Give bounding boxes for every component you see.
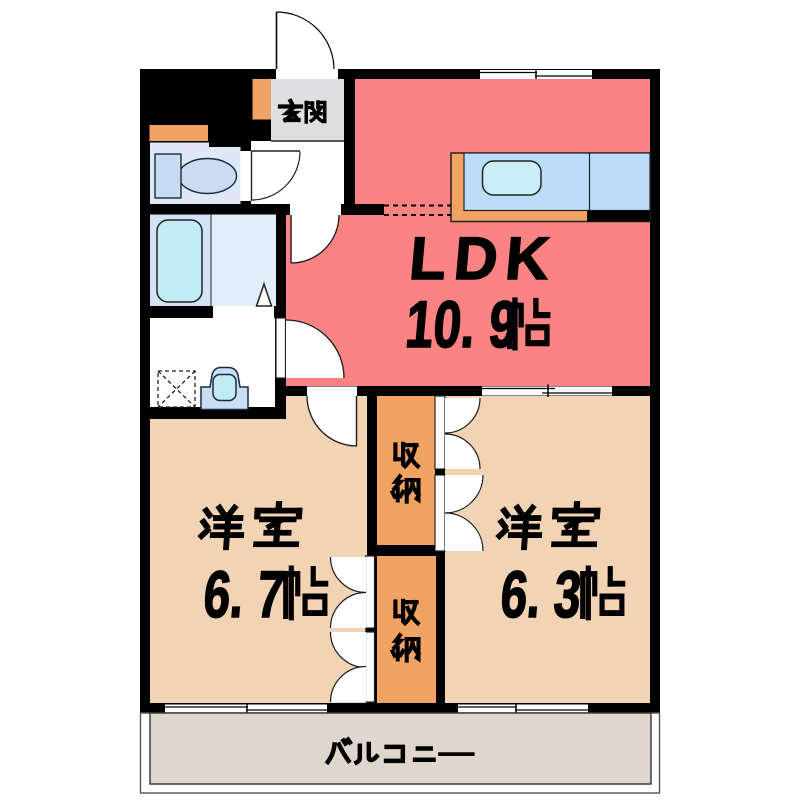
svg-text:10. 9: 10. 9 — [403, 288, 520, 362]
svg-text:LDK: LDK — [407, 225, 560, 292]
svg-text:6. 7: 6. 7 — [201, 558, 287, 632]
svg-text:6. 3: 6. 3 — [498, 558, 584, 632]
